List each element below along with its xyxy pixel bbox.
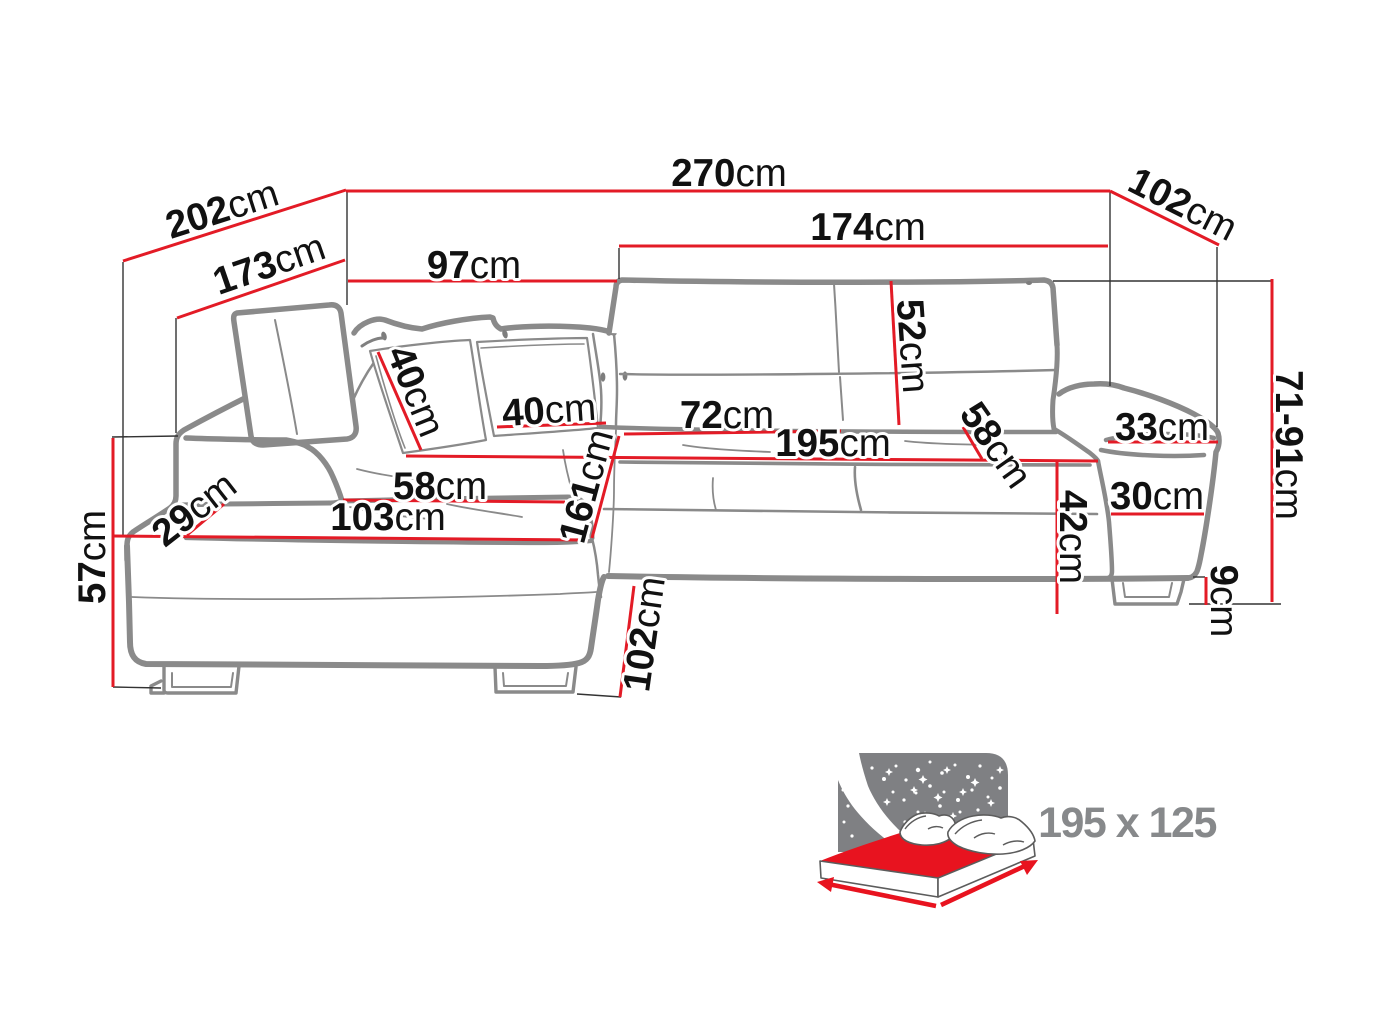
svg-text:57cm: 57cm (71, 510, 114, 604)
svg-text:195 x 125: 195 x 125 (1038, 799, 1216, 847)
svg-text:195cm: 195cm (775, 422, 891, 465)
svg-text:97cm: 97cm (427, 244, 521, 287)
svg-text:174cm: 174cm (810, 206, 926, 249)
svg-text:270cm: 270cm (671, 152, 787, 195)
svg-text:9cm: 9cm (1202, 565, 1245, 638)
svg-text:52cm: 52cm (888, 298, 937, 395)
svg-text:71-91cm: 71-91cm (1267, 370, 1310, 520)
svg-text:33cm: 33cm (1115, 406, 1209, 449)
svg-text:72cm: 72cm (680, 394, 774, 437)
svg-text:30cm: 30cm (1110, 475, 1204, 518)
svg-text:42cm: 42cm (1051, 490, 1094, 584)
svg-text:103cm: 103cm (330, 496, 446, 539)
